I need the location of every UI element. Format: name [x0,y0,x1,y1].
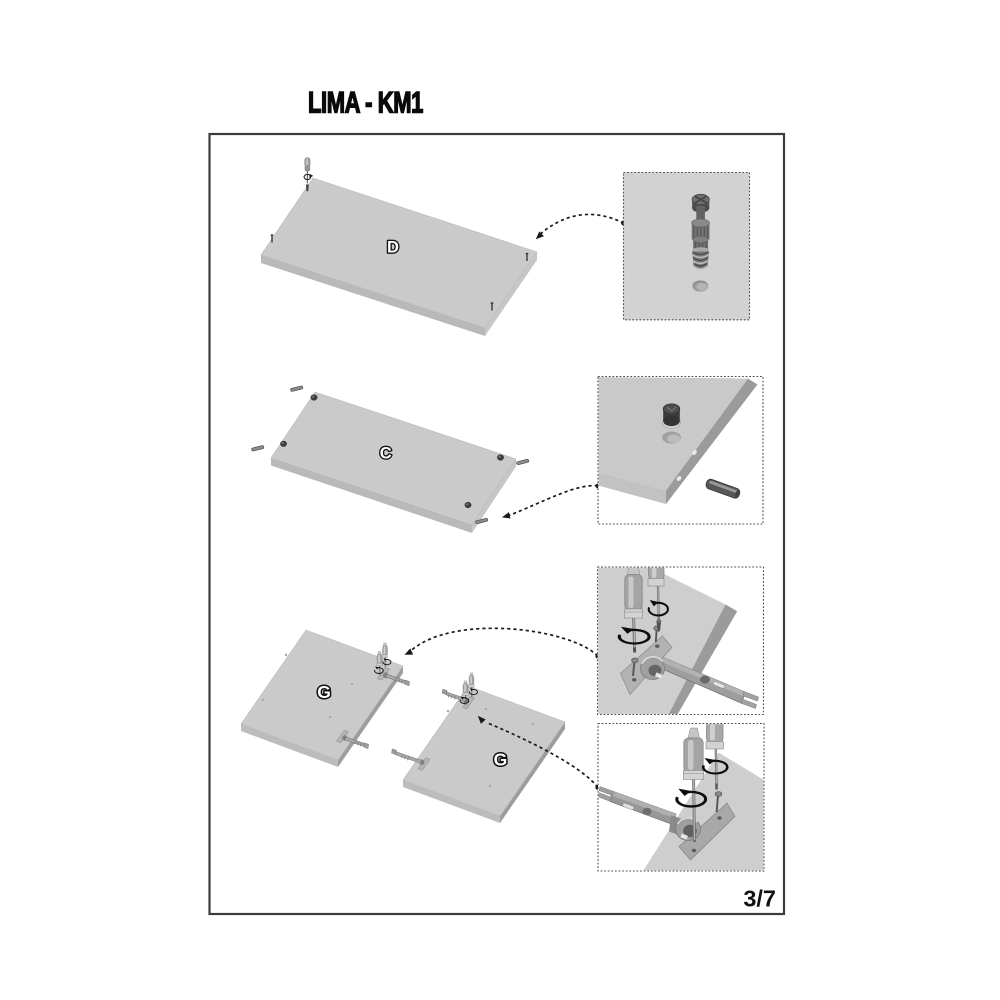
svg-text:D: D [387,239,399,257]
svg-text:LIMA - KM1: LIMA - KM1 [308,87,423,120]
svg-text:3/7: 3/7 [743,886,776,912]
svg-text:G: G [494,750,508,770]
svg-text:G: G [317,682,331,702]
svg-text:C: C [380,445,392,463]
